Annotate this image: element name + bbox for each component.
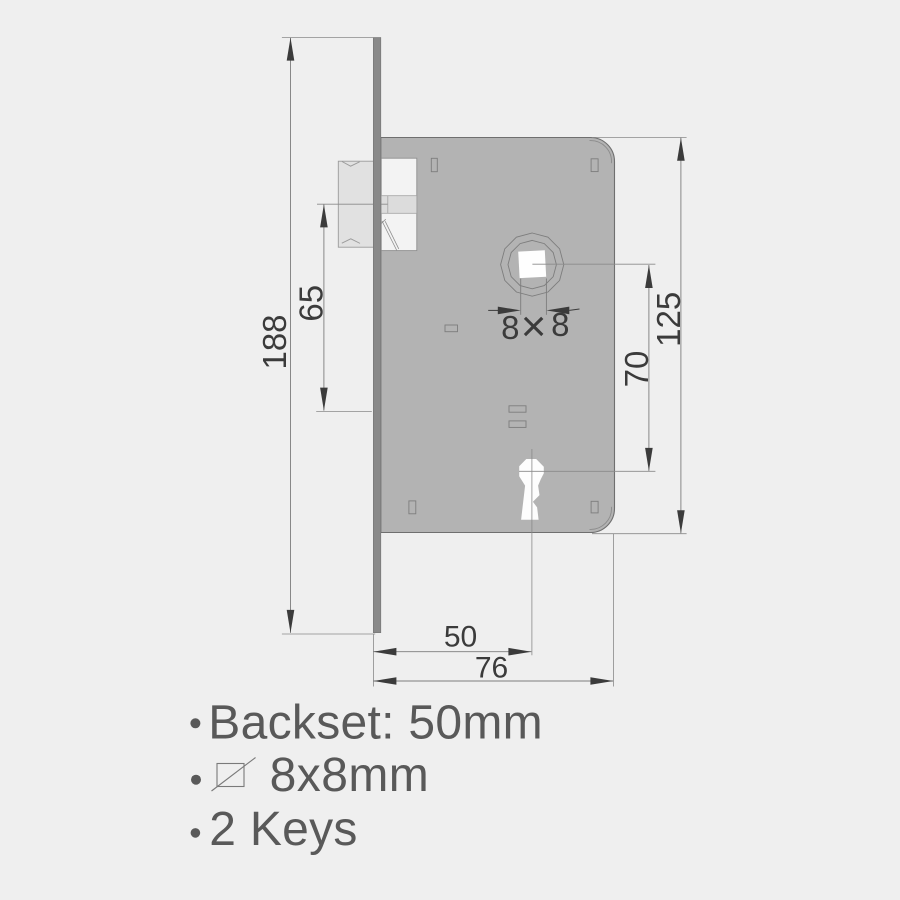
svg-text:76: 76 — [475, 652, 508, 685]
svg-text:65: 65 — [293, 285, 330, 322]
svg-text:70: 70 — [618, 351, 655, 388]
svg-text:Backset: 50mm: Backset: 50mm — [208, 697, 543, 750]
svg-text:2 Keys: 2 Keys — [209, 803, 358, 856]
svg-text:8x8mm: 8x8mm — [270, 749, 430, 802]
svg-text:50: 50 — [444, 621, 477, 654]
svg-text:188: 188 — [256, 314, 293, 369]
svg-text:125: 125 — [650, 292, 687, 347]
